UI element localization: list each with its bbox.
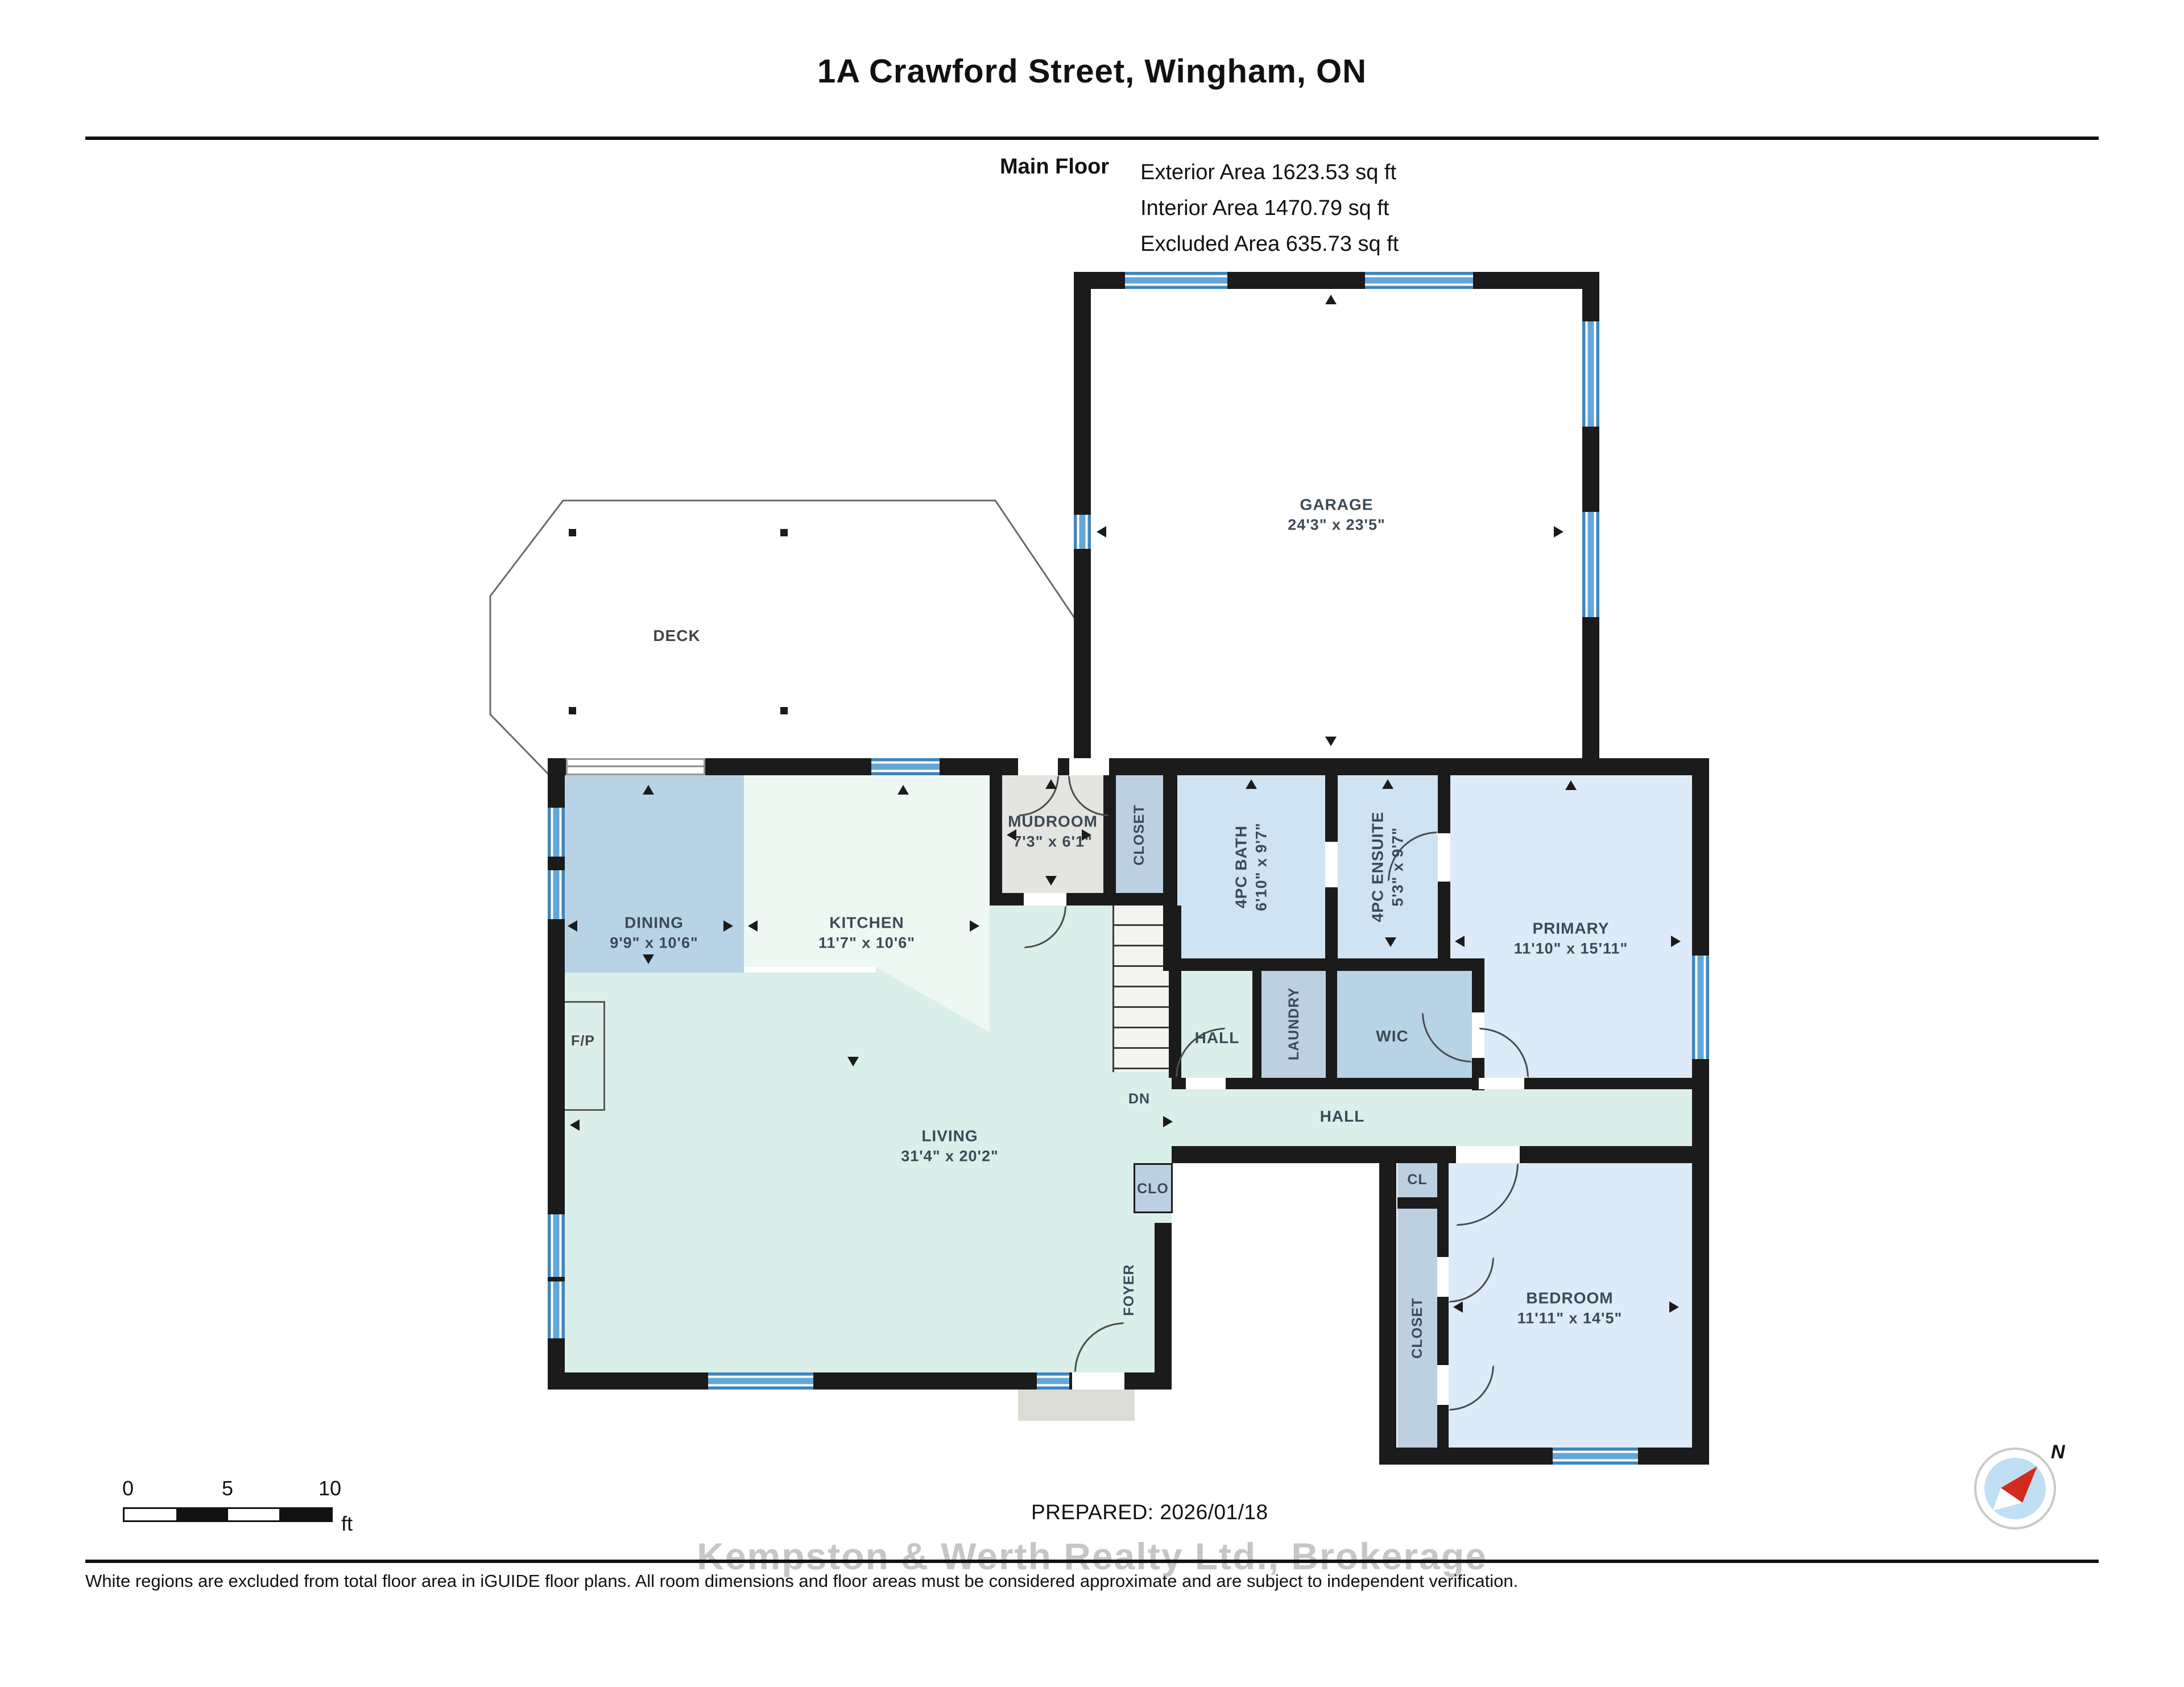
- fireplace-label: F/P: [571, 1032, 595, 1051]
- dim-arrow: [1671, 936, 1681, 947]
- kitchen-living-transition: [876, 967, 990, 1032]
- hall-label: HALL: [1320, 1106, 1365, 1127]
- deck-label: DECK: [653, 626, 700, 646]
- dim-arrow: [1045, 876, 1057, 886]
- window: [1582, 321, 1599, 427]
- dim-arrow: [970, 920, 979, 932]
- garage-label: GARAGE 24'3" x 23'5": [1288, 494, 1385, 535]
- compass-north-label: N: [2051, 1441, 2065, 1463]
- dim-arrow: [643, 785, 654, 795]
- primary-label: PRIMARY 11'10" x 15'11": [1514, 918, 1628, 958]
- dim-arrow: [1453, 1301, 1463, 1313]
- wall: [990, 758, 1002, 905]
- door-opening: [1325, 842, 1338, 887]
- window: [548, 870, 565, 919]
- deck-outline: [483, 495, 1086, 782]
- scale-segment: [176, 1509, 228, 1520]
- door-opening: [1024, 893, 1066, 905]
- wall: [990, 893, 1176, 905]
- dim-arrow: [748, 920, 758, 932]
- patio-door: [566, 758, 705, 775]
- stairs-dn-label: DN: [1128, 1090, 1150, 1109]
- door-opening: [1069, 758, 1109, 775]
- scale-segment: [228, 1509, 280, 1520]
- door-opening: [1438, 833, 1450, 882]
- door-opening: [1437, 1257, 1449, 1297]
- dim-arrow: [1565, 780, 1577, 790]
- wall: [1397, 1197, 1437, 1209]
- window: [548, 1214, 565, 1277]
- wall: [1163, 958, 1484, 971]
- window: [1125, 272, 1227, 289]
- kitchen-label: KITCHEN 11'7" x 10'6": [818, 912, 915, 953]
- dim-arrow: [1097, 526, 1106, 537]
- deck-post: [569, 529, 576, 536]
- laundry-label: LAUNDRY: [1285, 987, 1304, 1060]
- front-porch-step: [1018, 1390, 1135, 1421]
- deck-post: [569, 707, 576, 714]
- dim-arrow: [643, 954, 654, 964]
- dim-arrow: [847, 1057, 859, 1066]
- dim-arrow: [1163, 1116, 1173, 1127]
- dim-arrow: [1385, 937, 1396, 947]
- cl-label: CL: [1407, 1171, 1427, 1189]
- window: [1074, 515, 1091, 549]
- door-opening: [1018, 758, 1058, 775]
- scale-bar: [123, 1507, 333, 1522]
- dim-arrow: [568, 920, 577, 932]
- upper-hall-label: HALL: [1195, 1028, 1240, 1048]
- scale-segment: [125, 1509, 176, 1520]
- dim-arrow: [1455, 936, 1465, 947]
- living-label: LIVING 31'4" x 20'2": [901, 1126, 999, 1166]
- window: [871, 758, 940, 775]
- fireplace-box: [561, 1001, 605, 1111]
- wall: [1252, 971, 1261, 1078]
- wall: [1692, 758, 1709, 1465]
- dim-arrow: [1246, 779, 1257, 789]
- window: [1553, 1448, 1638, 1465]
- floor-plan-page: 1A Crawford Street, Wingham, ON Main Flo…: [0, 0, 2184, 1687]
- scale-tick-5: 5: [222, 1477, 233, 1500]
- dim-arrow: [1007, 829, 1016, 841]
- compass-icon: [1972, 1446, 2058, 1531]
- window: [1582, 512, 1599, 617]
- dim-arrow: [1082, 829, 1091, 841]
- wall: [1172, 1078, 1709, 1089]
- scale-unit: ft: [341, 1512, 353, 1536]
- door-opening: [1186, 1078, 1226, 1089]
- window: [1365, 272, 1473, 289]
- wall: [1437, 1163, 1449, 1448]
- clo-label: CLO: [1137, 1180, 1169, 1198]
- scale-segment: [279, 1509, 331, 1520]
- foyer-label: FOYER: [1120, 1264, 1139, 1316]
- foyer-wall: [1155, 1223, 1172, 1390]
- dim-arrow: [1669, 1301, 1679, 1313]
- dim-arrow: [1045, 779, 1057, 789]
- dim-arrow: [570, 1119, 580, 1131]
- wall: [548, 758, 1709, 775]
- footer-divider: [85, 1560, 2099, 1563]
- living-room-area: [565, 973, 1172, 1372]
- door-opening: [1456, 1146, 1520, 1163]
- floor-plan: GARAGE 24'3" x 23'5" DECK DINING 9'9" x …: [0, 0, 2184, 1687]
- staircase: [1112, 905, 1169, 1072]
- front-door-opening: [1072, 1372, 1124, 1390]
- prepared-date: PREPARED: 2026/01/18: [1031, 1500, 1268, 1524]
- bedroom-label: BEDROOM 11'11" x 14'5": [1517, 1288, 1623, 1328]
- dim-arrow: [1554, 526, 1563, 537]
- disclaimer-text: White regions are excluded from total fl…: [85, 1571, 1518, 1591]
- mudroom-closet-label: CLOSET: [1130, 804, 1149, 865]
- window: [548, 808, 565, 857]
- door-opening: [1479, 1078, 1524, 1089]
- dim-arrow: [1325, 737, 1337, 746]
- dim-arrow: [1382, 779, 1393, 789]
- wall: [1379, 1448, 1709, 1465]
- wall: [1169, 905, 1181, 1078]
- window: [548, 1281, 565, 1338]
- wall: [1379, 1146, 1396, 1465]
- wic-label: WIC: [1376, 1026, 1408, 1047]
- wall: [1172, 1146, 1709, 1163]
- bath-label: 4PC BATH 6'10" x 9'7": [1231, 822, 1271, 911]
- dim-arrow: [897, 785, 909, 795]
- scale-tick-0: 0: [122, 1477, 134, 1500]
- dining-label: DINING 9'9" x 10'6": [610, 912, 698, 953]
- deck-post: [780, 707, 788, 714]
- deck-post: [780, 529, 788, 536]
- ensuite-label: 4PC ENSUITE 5'3" x 9'7": [1367, 812, 1408, 923]
- dim-arrow: [723, 920, 733, 932]
- scale-tick-10: 10: [318, 1477, 341, 1500]
- bedroom-closet-label: CLOSET: [1408, 1297, 1427, 1358]
- hall-corridor-area: [1172, 1089, 1692, 1146]
- window: [1037, 1372, 1069, 1390]
- door-opening: [1437, 1365, 1449, 1405]
- window: [708, 1372, 813, 1390]
- window: [1692, 956, 1709, 1059]
- dim-arrow: [1325, 295, 1337, 304]
- wall: [1326, 971, 1337, 1078]
